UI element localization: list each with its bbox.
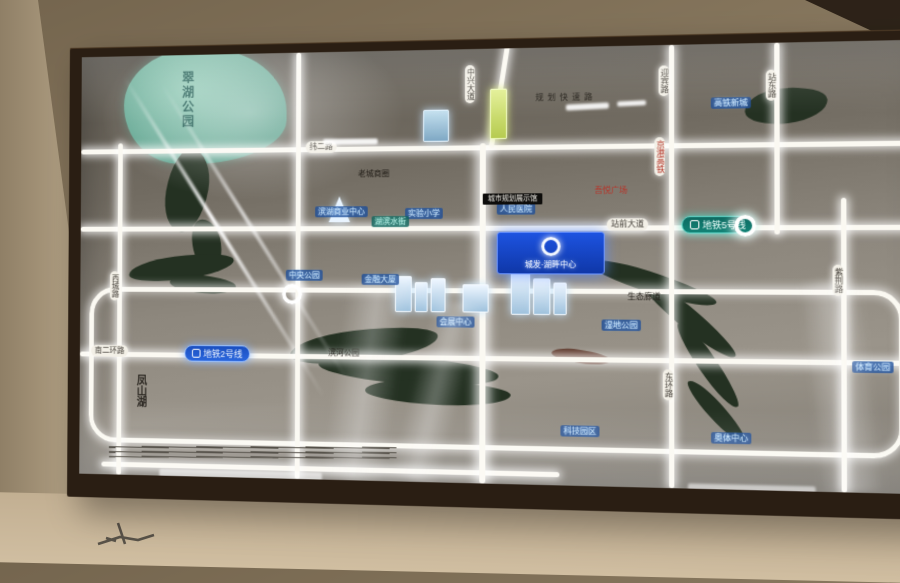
- district-label-bottom-left: 凤山湖: [133, 374, 148, 406]
- project-building: [511, 272, 530, 315]
- poi-label-black: 生态廊道: [627, 293, 660, 301]
- ceiling-light-reflection: [566, 102, 609, 110]
- poi-label-blue: 高铁新城: [711, 97, 751, 109]
- ceiling-light-reflection: [617, 100, 646, 107]
- project-logo-badge: 城发·湖畔中心: [497, 232, 605, 275]
- project-building: [553, 283, 566, 316]
- wall-sketch: [92, 514, 184, 554]
- metro-line2-banner: 地铁2号线: [184, 345, 250, 362]
- illuminated-map: 翠湖公园 地铁5号线 地铁2号线: [79, 39, 900, 495]
- metro-station-ring: [734, 215, 756, 237]
- glass-glare: [99, 39, 405, 201]
- poi-label-blue: 科技园区: [560, 425, 599, 437]
- road-label-vertical: 站东路: [766, 70, 777, 101]
- poi-label-teal: 湖滨水街: [372, 216, 409, 227]
- green-patch: [743, 83, 830, 128]
- road-label-horizontal: 南二环路: [91, 345, 128, 357]
- landmark-building-blue: [423, 110, 449, 142]
- poi-label-blue: 金融大厦: [362, 274, 399, 285]
- metro-icon: [192, 349, 201, 358]
- road-vertical-4: [669, 45, 674, 488]
- road-label-vertical: 迎宾路: [659, 65, 670, 96]
- map-board-frame: 翠湖公园 地铁5号线 地铁2号线: [67, 28, 900, 520]
- metro-line2-label: 地铁2号线: [203, 347, 242, 360]
- poi-label-blue: 湿地公园: [602, 319, 641, 331]
- poi-label-blue: 滨湖商业中心: [315, 206, 368, 217]
- road-label-vertical: 西城路: [110, 271, 120, 300]
- poi-label-dark-bar: 城市规划展示馆: [483, 193, 543, 204]
- poi-label-red: 吾悦广场: [594, 187, 627, 195]
- project-building: [415, 282, 428, 312]
- ring-road: [89, 287, 900, 459]
- developer-logo-icon: [541, 236, 560, 255]
- road-label-vertical: 东环路: [663, 369, 674, 400]
- ceiling-light-reflection: [323, 138, 378, 145]
- metro-icon: [690, 220, 699, 229]
- poi-label-blue: 人民医院: [497, 203, 535, 214]
- road-label-vertical: 中兴大道: [465, 65, 475, 103]
- poi-label-blue: 奥体中心: [711, 432, 751, 444]
- road-label-horizontal: 站前大道: [607, 218, 648, 230]
- poi-label-black: 规划快速路: [535, 93, 596, 102]
- rail-label-vertical-red: 京港高铁: [654, 137, 665, 176]
- glass-glare: [688, 483, 816, 494]
- project-building: [533, 278, 550, 315]
- landmark-building-yellow: [490, 89, 507, 140]
- project-name: 城发·湖畔中心: [525, 259, 577, 270]
- poi-label-blue: 中央公园: [286, 270, 323, 281]
- poi-label-blue: 实验小学: [405, 208, 443, 219]
